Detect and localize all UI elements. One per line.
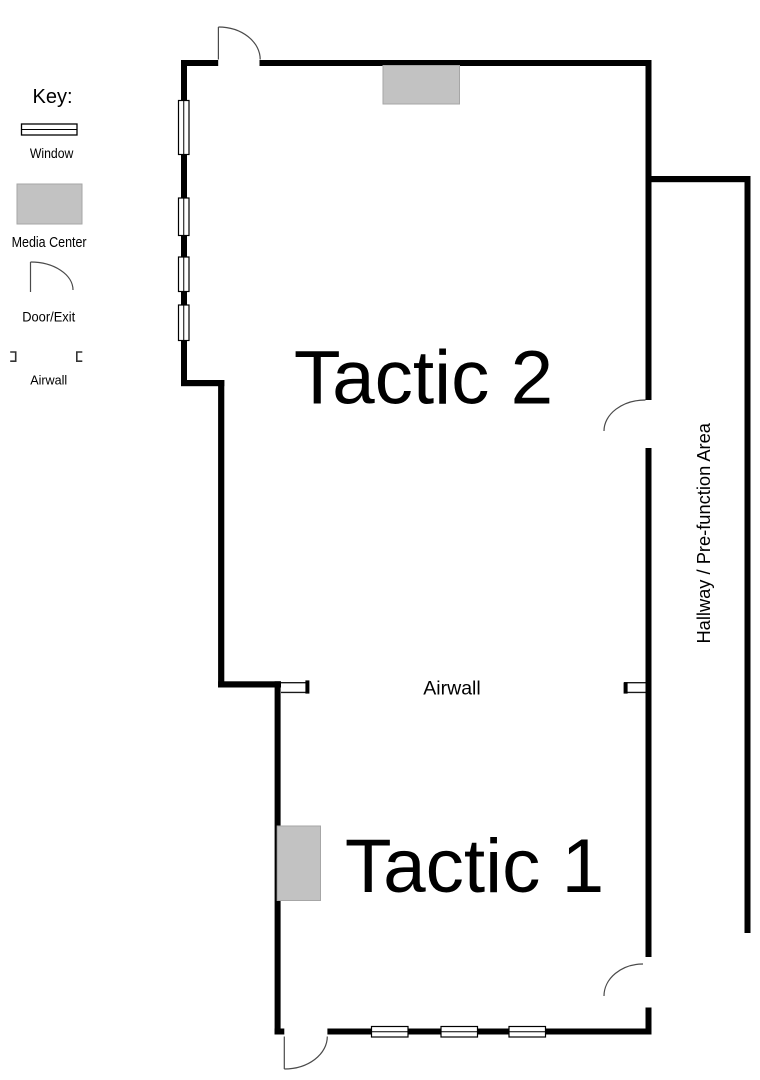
svg-text:Airwall: Airwall [30,373,67,388]
svg-text:Tactic 2: Tactic 2 [294,336,553,421]
svg-text:Window: Window [30,146,74,162]
svg-text:Tactic 1: Tactic 1 [345,824,604,909]
svg-text:Key:: Key: [33,86,73,108]
svg-text:Hallway / Pre-function Area: Hallway / Pre-function Area [693,422,714,643]
svg-text:Door/Exit: Door/Exit [22,310,75,325]
svg-text:Media Center: Media Center [12,234,87,251]
svg-text:Airwall: Airwall [423,678,480,700]
